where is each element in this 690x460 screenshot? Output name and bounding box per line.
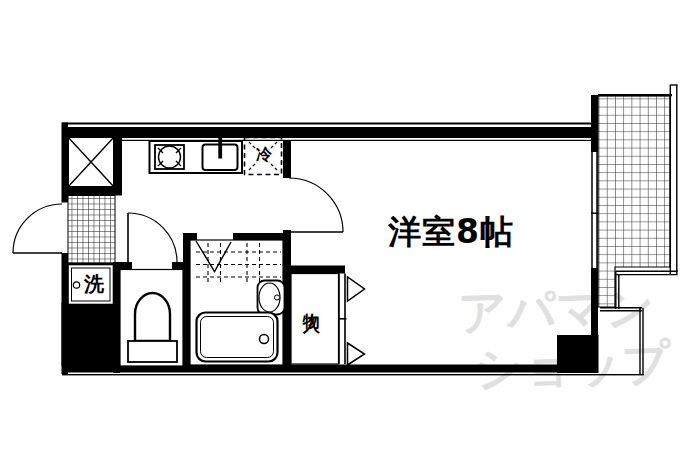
stove-icon [155, 145, 184, 169]
toilet-room [113, 262, 189, 373]
balcony-floor-hatch [598, 96, 670, 307]
washbasin-icon [258, 281, 285, 315]
entrance-tile [68, 196, 115, 264]
corner-notch-wall [557, 335, 599, 373]
washer-label: 洗 [84, 274, 104, 294]
balcony-window [591, 95, 598, 335]
bathtub-icon [197, 313, 278, 362]
refrigerator-label: 冷 [246, 147, 282, 163]
bathroom [183, 233, 291, 365]
meter-box [62, 128, 122, 196]
floorplan-canvas: アパマン ショップ [0, 0, 690, 460]
closet [285, 266, 365, 366]
closet-label: 物入 [303, 299, 320, 305]
kitchen-door-icon [289, 178, 343, 232]
faucet-dot-icon [73, 282, 79, 288]
balcony [598, 85, 678, 374]
closet-door-triangles-icon [348, 277, 365, 365]
faucet-icon [218, 137, 222, 159]
floorplan-drawing [0, 0, 690, 460]
toilet-door-icon [128, 213, 177, 262]
entrance-door-icon [13, 204, 62, 253]
main-room-label: 洋室8帖 [363, 215, 539, 248]
kitchen-counter [150, 137, 243, 174]
